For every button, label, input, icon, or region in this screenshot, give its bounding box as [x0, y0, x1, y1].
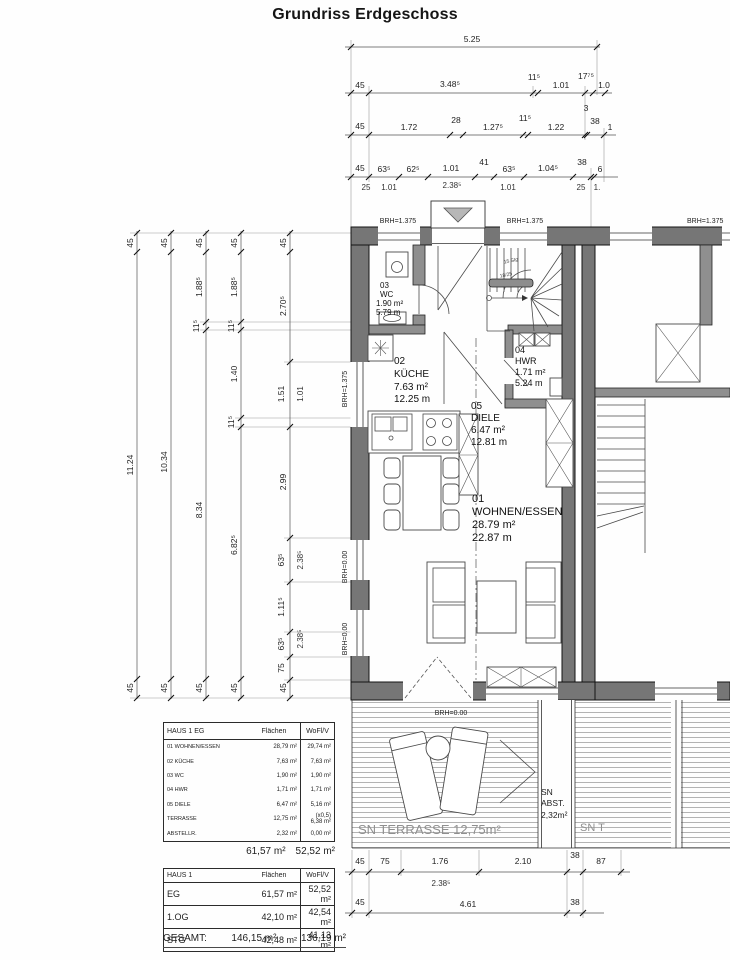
room-name: WC [380, 290, 394, 299]
dim-label: 1.0 [598, 80, 610, 90]
dim-label: 45 [278, 683, 288, 693]
table-row: TERRASSE12,75 m²(x0,5) 6,38 m² [164, 812, 335, 826]
coffee-table [477, 581, 516, 633]
sofa [526, 562, 561, 643]
dim-sublabel: 2.38⁵ [443, 181, 462, 190]
party-wall-right-leaf [582, 245, 595, 682]
dim-label: 45 [229, 683, 239, 693]
dim-sublabel: 2.38⁵ [296, 630, 305, 649]
room-area: 1.71 m² [515, 367, 546, 377]
brh-label: BRH=1.375 [507, 218, 543, 225]
dim-label: 3.48⁵ [440, 79, 460, 89]
dim-label: 38 [590, 116, 600, 126]
dim-sublabel: 1.01 [500, 183, 516, 192]
dim-label: 8.34 [194, 501, 204, 518]
table-row: 03 WC1,90 m²1,90 m² [164, 769, 335, 783]
dim-label: 38 [577, 157, 587, 167]
brh-label: BRH=0.00 [342, 623, 349, 656]
room-id: 04 [515, 345, 525, 355]
neighbor-fixtures [656, 324, 700, 382]
dim-label: 63⁵ [378, 164, 391, 174]
dim-label: 1.01 [553, 80, 570, 90]
sideboard [487, 667, 556, 687]
dim-label: 45 [229, 238, 239, 248]
storage-label: 2,32m² [541, 810, 568, 820]
room-area: 28.79 m² [472, 519, 516, 531]
brh-label: BRH=1.375 [380, 218, 416, 225]
stair-direction-arrow-icon [522, 295, 528, 301]
room-area: 7.63 m² [394, 382, 429, 393]
dim-label: 1 [608, 122, 613, 132]
room-area: 1.90 m² [376, 299, 403, 308]
dim-label: 75 [380, 856, 390, 866]
dim-sublabel: 1.01 [381, 183, 397, 192]
chair [384, 458, 400, 478]
dim-sublabel: 2.38⁵ [296, 551, 305, 570]
chair [384, 510, 400, 530]
dim-label: 6.82⁵ [229, 535, 239, 555]
dim-label: 45 [125, 683, 135, 693]
dim-label: 3 [584, 103, 589, 113]
eg-areas-total: 61,57 m²52,52 m² [163, 846, 335, 857]
room-name: DIELE [471, 413, 500, 424]
dim-label: 45 [159, 238, 169, 248]
dim-label: 45 [125, 238, 135, 248]
dim-label: 45 [355, 897, 365, 907]
dim-label: 2.10 [515, 856, 532, 866]
neighbor-wall [700, 245, 712, 325]
dim-label: 10.34 [159, 451, 169, 473]
dim-label: 11⁵ [528, 72, 540, 82]
terrace-label: SN TERRASSE 12,75m² [358, 822, 501, 837]
dim-label: 11⁵ [519, 113, 531, 123]
dining-table [403, 456, 441, 530]
left-dimensions: 45 11.24 45 45 10.34 45 45 1.88⁵ 11⁵ 8.3… [125, 238, 305, 693]
entrance-marker [431, 201, 485, 228]
table-header-row: HAUS 1 Flächen WoFl/V [164, 869, 335, 883]
top-dimensions: 5.25 45 3.48⁵ 11⁵ 1.01 17⁷⁵ 1.0 45 1.72 … [355, 34, 612, 192]
dim-label: 4.61 [460, 899, 477, 909]
dim-label: 17⁷⁵ [578, 71, 594, 81]
neighbor-wall [595, 388, 730, 397]
table-row: ABSTELLR.2,32 m²0,00 m² [164, 826, 335, 841]
total-flaechen: 146,15 m² [231, 933, 276, 944]
table-row: 01 WOHNEN/ESSEN28,79 m²29,74 m² [164, 740, 335, 755]
table-header-cell: Flächen [248, 723, 301, 740]
chair [443, 510, 459, 530]
floorplan-page: Grundriss Erdgeschoss 5.25 45 3.48⁵ 11⁵ … [0, 0, 730, 960]
storage-leader-arrow [500, 740, 535, 803]
dim-label: 11⁵ [226, 416, 236, 428]
room-name: KÜCHE [394, 368, 429, 380]
dim-sublabel: 25 [362, 183, 371, 192]
dim-label: 1.88⁵ [229, 277, 239, 297]
dim-label: 1.51 [276, 385, 286, 402]
dim-label: 45 [194, 238, 204, 248]
brh-label: BRH=0.00 [342, 551, 349, 584]
room-id: 05 [471, 401, 483, 412]
chair [443, 458, 459, 478]
room-perimeter: 22.87 m [472, 532, 512, 544]
dim-label: 1.72 [401, 122, 418, 132]
dim-label: 2.70⁵ [278, 296, 288, 316]
dim-sublabel: 1. [594, 183, 601, 192]
table-header-cell: HAUS 1 [164, 869, 249, 883]
dim-label: 38 [570, 850, 580, 860]
storage-label: SN [541, 787, 553, 797]
table-row: EG61,57 m²52,52 m² [164, 883, 335, 906]
dim-label: 28 [451, 115, 461, 125]
dim-sublabel: 2.38⁵ [432, 879, 451, 888]
dim-label: 45 [194, 683, 204, 693]
room-id: 01 [472, 493, 484, 505]
dim-label: 41 [479, 157, 489, 167]
dim-label: 1.22 [548, 122, 565, 132]
dim-label: 45 [355, 121, 365, 131]
dim-label: 45 [278, 238, 288, 248]
dim-label: 6 [598, 164, 603, 174]
terrace: SN TERRASSE 12,75m² SN ABST. 2,32m² SN T [352, 700, 730, 848]
room-name: WOHNEN/ESSEN [472, 506, 563, 518]
dim-label: 1.04⁵ [538, 163, 558, 173]
room-id: 03 [380, 281, 389, 290]
dim-label: 87 [596, 856, 606, 866]
bottom-dimensions: 45 75 1.76 2.10 38 87 2.38⁵ 45 4.61 38 [355, 850, 606, 909]
eg-areas-table: HAUS 1 EG Flächen WoFl/V 01 WOHNEN/ESSEN… [163, 722, 335, 842]
dim-label: 2.99 [278, 473, 288, 490]
neighbor-terrace-label: SN T [580, 822, 605, 834]
dim-label: 1.76 [432, 856, 449, 866]
room-area: 6.47 m² [471, 425, 506, 436]
dim-label: 63⁵ [276, 638, 286, 651]
total-label: GESAMT: [163, 933, 207, 944]
table-row: 04 HWR1,71 m²1,71 m² [164, 783, 335, 797]
dining-set [384, 456, 459, 530]
brh-label: BRH=1.375 [342, 371, 349, 407]
dim-label: 11⁵ [191, 320, 201, 332]
neighbor-staircase [597, 399, 645, 553]
room-perimeter: 5.79 m [376, 308, 401, 317]
storage-label: ABST. [541, 798, 565, 808]
table-row: 02 KÜCHE7,63 m²7,63 m² [164, 754, 335, 768]
dim-label: 1.11⁵ [276, 597, 286, 616]
room-perimeter: 12.81 m [471, 437, 507, 448]
dim-label: 11⁵ [226, 320, 236, 332]
dim-label: 45 [355, 163, 365, 173]
chair [384, 484, 400, 504]
dim-label: 1.01 [443, 163, 460, 173]
total-wofl: 52,52 m² [296, 846, 335, 857]
table-header-cell: HAUS 1 EG [164, 723, 249, 740]
dim-label: 5.25 [464, 34, 481, 44]
dim-label: 45 [355, 80, 365, 90]
brh-label: BRH=0.00 [435, 710, 468, 717]
room-id: 02 [394, 356, 406, 367]
room-name: HWR [515, 356, 537, 366]
total-wofl: 136,19 m² [301, 933, 346, 944]
room-perimeter: 12.25 m [394, 394, 430, 405]
chair [443, 484, 459, 504]
stair-handrail [489, 279, 533, 287]
side-table [426, 736, 450, 760]
dim-label: 62⁵ [407, 164, 420, 174]
table-header-cell: Flächen [248, 869, 301, 883]
dim-label: 63⁵ [503, 164, 516, 174]
dim-sublabel: 1.01 [296, 386, 305, 402]
table-header-row: HAUS 1 EG Flächen WoFl/V [164, 723, 335, 740]
dim-label: 45 [159, 683, 169, 693]
floorplan-drawing: 5.25 45 3.48⁵ 11⁵ 1.01 17⁷⁵ 1.0 45 1.72 … [0, 0, 730, 960]
dim-label: 1.40 [229, 365, 239, 382]
dim-label: 45 [355, 856, 365, 866]
dim-label: 1.88⁵ [194, 277, 204, 297]
dim-label: 38 [570, 897, 580, 907]
dim-label: 63⁵ [276, 554, 286, 567]
dim-label: 75 [276, 663, 286, 673]
dim-sublabel: 25 [577, 183, 586, 192]
hwr-cabinet [550, 378, 562, 396]
toilet [386, 252, 408, 277]
table-row: 05 DIELE6,47 m²5,16 m² [164, 798, 335, 812]
room-perimeter: 5.24 m [515, 378, 543, 388]
total-flaechen: 61,57 m² [246, 846, 285, 857]
table-row: 1.OG42,10 m²42,54 m² [164, 906, 335, 929]
table-header-cell: WoFl/V [301, 723, 335, 740]
dim-label: 1.27⁵ [483, 122, 503, 132]
staircase: 15 Stg 18/25 [487, 246, 563, 331]
storage-strip [538, 700, 575, 848]
brh-label: BRH=1.375 [687, 218, 723, 225]
table-header-cell: WoFl/V [301, 869, 335, 883]
house-total-row: GESAMT: 146,15 m² 136,19 m² [163, 933, 346, 948]
dim-label: 11.24 [125, 454, 135, 475]
